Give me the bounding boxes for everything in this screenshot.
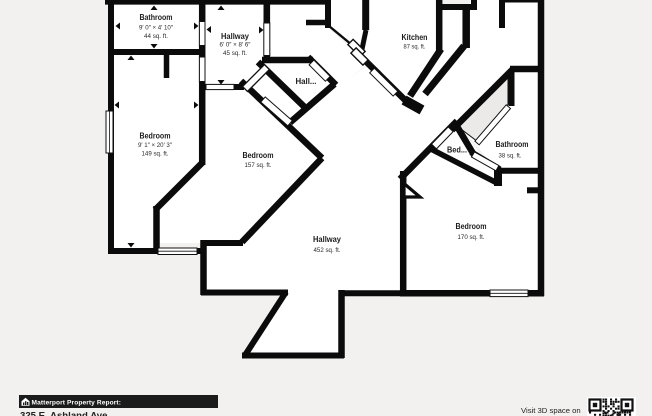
svg-text:157 sq. ft.: 157 sq. ft.: [245, 162, 272, 169]
svg-text:45 sq. ft.: 45 sq. ft.: [223, 50, 247, 57]
svg-text:Bed...: Bed...: [447, 146, 467, 155]
svg-text:170 sq. ft.: 170 sq. ft.: [458, 234, 485, 241]
svg-text:38 sq. ft.: 38 sq. ft.: [499, 153, 522, 160]
svg-text:9′ 0″ × 4′ 10″: 9′ 0″ × 4′ 10″: [139, 25, 174, 32]
svg-text:Bedroom: Bedroom: [140, 132, 171, 141]
svg-text:Hall...: Hall...: [296, 77, 317, 86]
svg-text:Bedroom: Bedroom: [243, 151, 274, 160]
svg-text:Bedroom: Bedroom: [456, 222, 487, 231]
svg-text:Visit 3D space on: Visit 3D space on: [521, 406, 581, 415]
svg-text:Bathroom: Bathroom: [496, 140, 529, 149]
svg-text:149 sq. ft.: 149 sq. ft.: [142, 151, 169, 158]
svg-text:Kitchen: Kitchen: [402, 33, 428, 42]
svg-text:Matterport Property Report:: Matterport Property Report:: [32, 399, 122, 406]
svg-text:452 sq. ft.: 452 sq. ft.: [314, 247, 341, 254]
svg-text:44 sq. ft.: 44 sq. ft.: [144, 33, 168, 40]
svg-text:Bathroom: Bathroom: [140, 13, 173, 22]
svg-text:325 E. Ashland Ave: 325 E. Ashland Ave: [20, 410, 107, 416]
svg-text:Hallway: Hallway: [313, 235, 342, 244]
svg-text:6′ 0″ × 8′ 6″: 6′ 0″ × 8′ 6″: [220, 42, 252, 49]
svg-text:Hallway: Hallway: [221, 32, 250, 41]
svg-text:9′ 1″ × 20′ 3″: 9′ 1″ × 20′ 3″: [138, 142, 173, 149]
svg-text:87 sq. ft.: 87 sq. ft.: [404, 44, 426, 51]
